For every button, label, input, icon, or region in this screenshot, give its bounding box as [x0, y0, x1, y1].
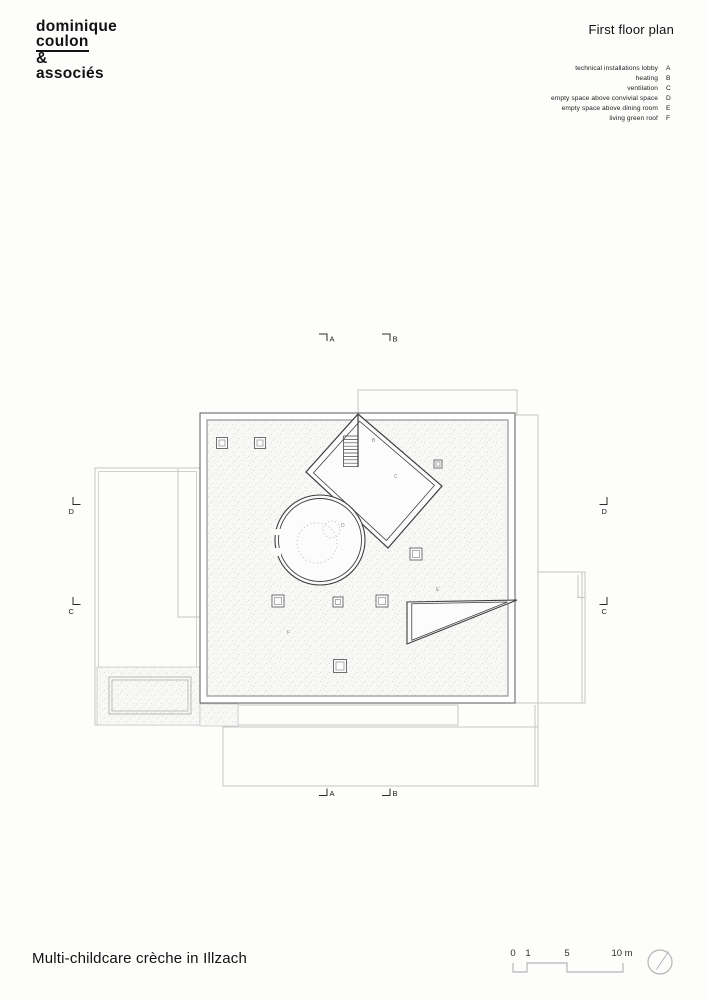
- roof-column: [410, 548, 422, 560]
- section-d-left-glyph: [73, 497, 81, 505]
- section-d-right-glyph: [600, 497, 608, 505]
- section-d-left-label: D: [69, 507, 75, 516]
- section-a-bottom-label: A: [330, 789, 335, 798]
- roof-column: [272, 595, 284, 607]
- east-strip-outline: [515, 415, 538, 703]
- section-a-bottom-glyph: [319, 789, 327, 796]
- roof-column: [334, 660, 347, 673]
- scale-tick-0: 0: [510, 948, 515, 959]
- scale-tick-1: 1: [525, 948, 530, 959]
- section-a-top-glyph: [319, 334, 327, 341]
- section-b-top-label: B: [393, 335, 398, 344]
- floor-plan-drawing: B C D E F A B A B D C D C 0 1 5 10 m: [0, 0, 707, 1000]
- roof-column: [333, 597, 343, 607]
- scale-bar: 0 1 5 10 m: [510, 948, 632, 972]
- label-green-roof: F: [287, 630, 290, 636]
- section-d-right-label: D: [602, 507, 608, 516]
- section-c-left-glyph: [73, 597, 81, 605]
- section-b-top-glyph: [382, 334, 390, 341]
- roof-column: [255, 438, 266, 449]
- wall-opening: [271, 548, 281, 556]
- section-a-top-label: A: [330, 335, 335, 344]
- north-volume-outline: [358, 390, 517, 415]
- east-wing-outline: [538, 572, 585, 703]
- south-porch-outline: [238, 705, 458, 725]
- roof-column: [376, 595, 388, 607]
- roof-column: [434, 460, 442, 468]
- label-convivial: D: [341, 523, 345, 529]
- section-b-bottom-label: B: [393, 789, 398, 798]
- section-c-left-label: C: [69, 607, 75, 616]
- wall-opening: [271, 529, 281, 535]
- scale-tick-10m: 10 m: [611, 948, 632, 959]
- label-ventilation: C: [394, 474, 398, 480]
- scale-tick-5: 5: [564, 948, 569, 959]
- section-c-right-label: C: [602, 607, 608, 616]
- project-title: Multi-childcare crèche in Illzach: [32, 950, 247, 967]
- roof-column: [217, 438, 228, 449]
- north-needle: [657, 952, 669, 970]
- south-volume-outline: [223, 703, 538, 786]
- drawing-sheet: { "logo": { "lines": ["dominique", "coul…: [0, 0, 707, 1000]
- section-c-right-glyph: [600, 597, 608, 605]
- north-arrow: [648, 950, 672, 974]
- section-b-bottom-glyph: [382, 789, 390, 796]
